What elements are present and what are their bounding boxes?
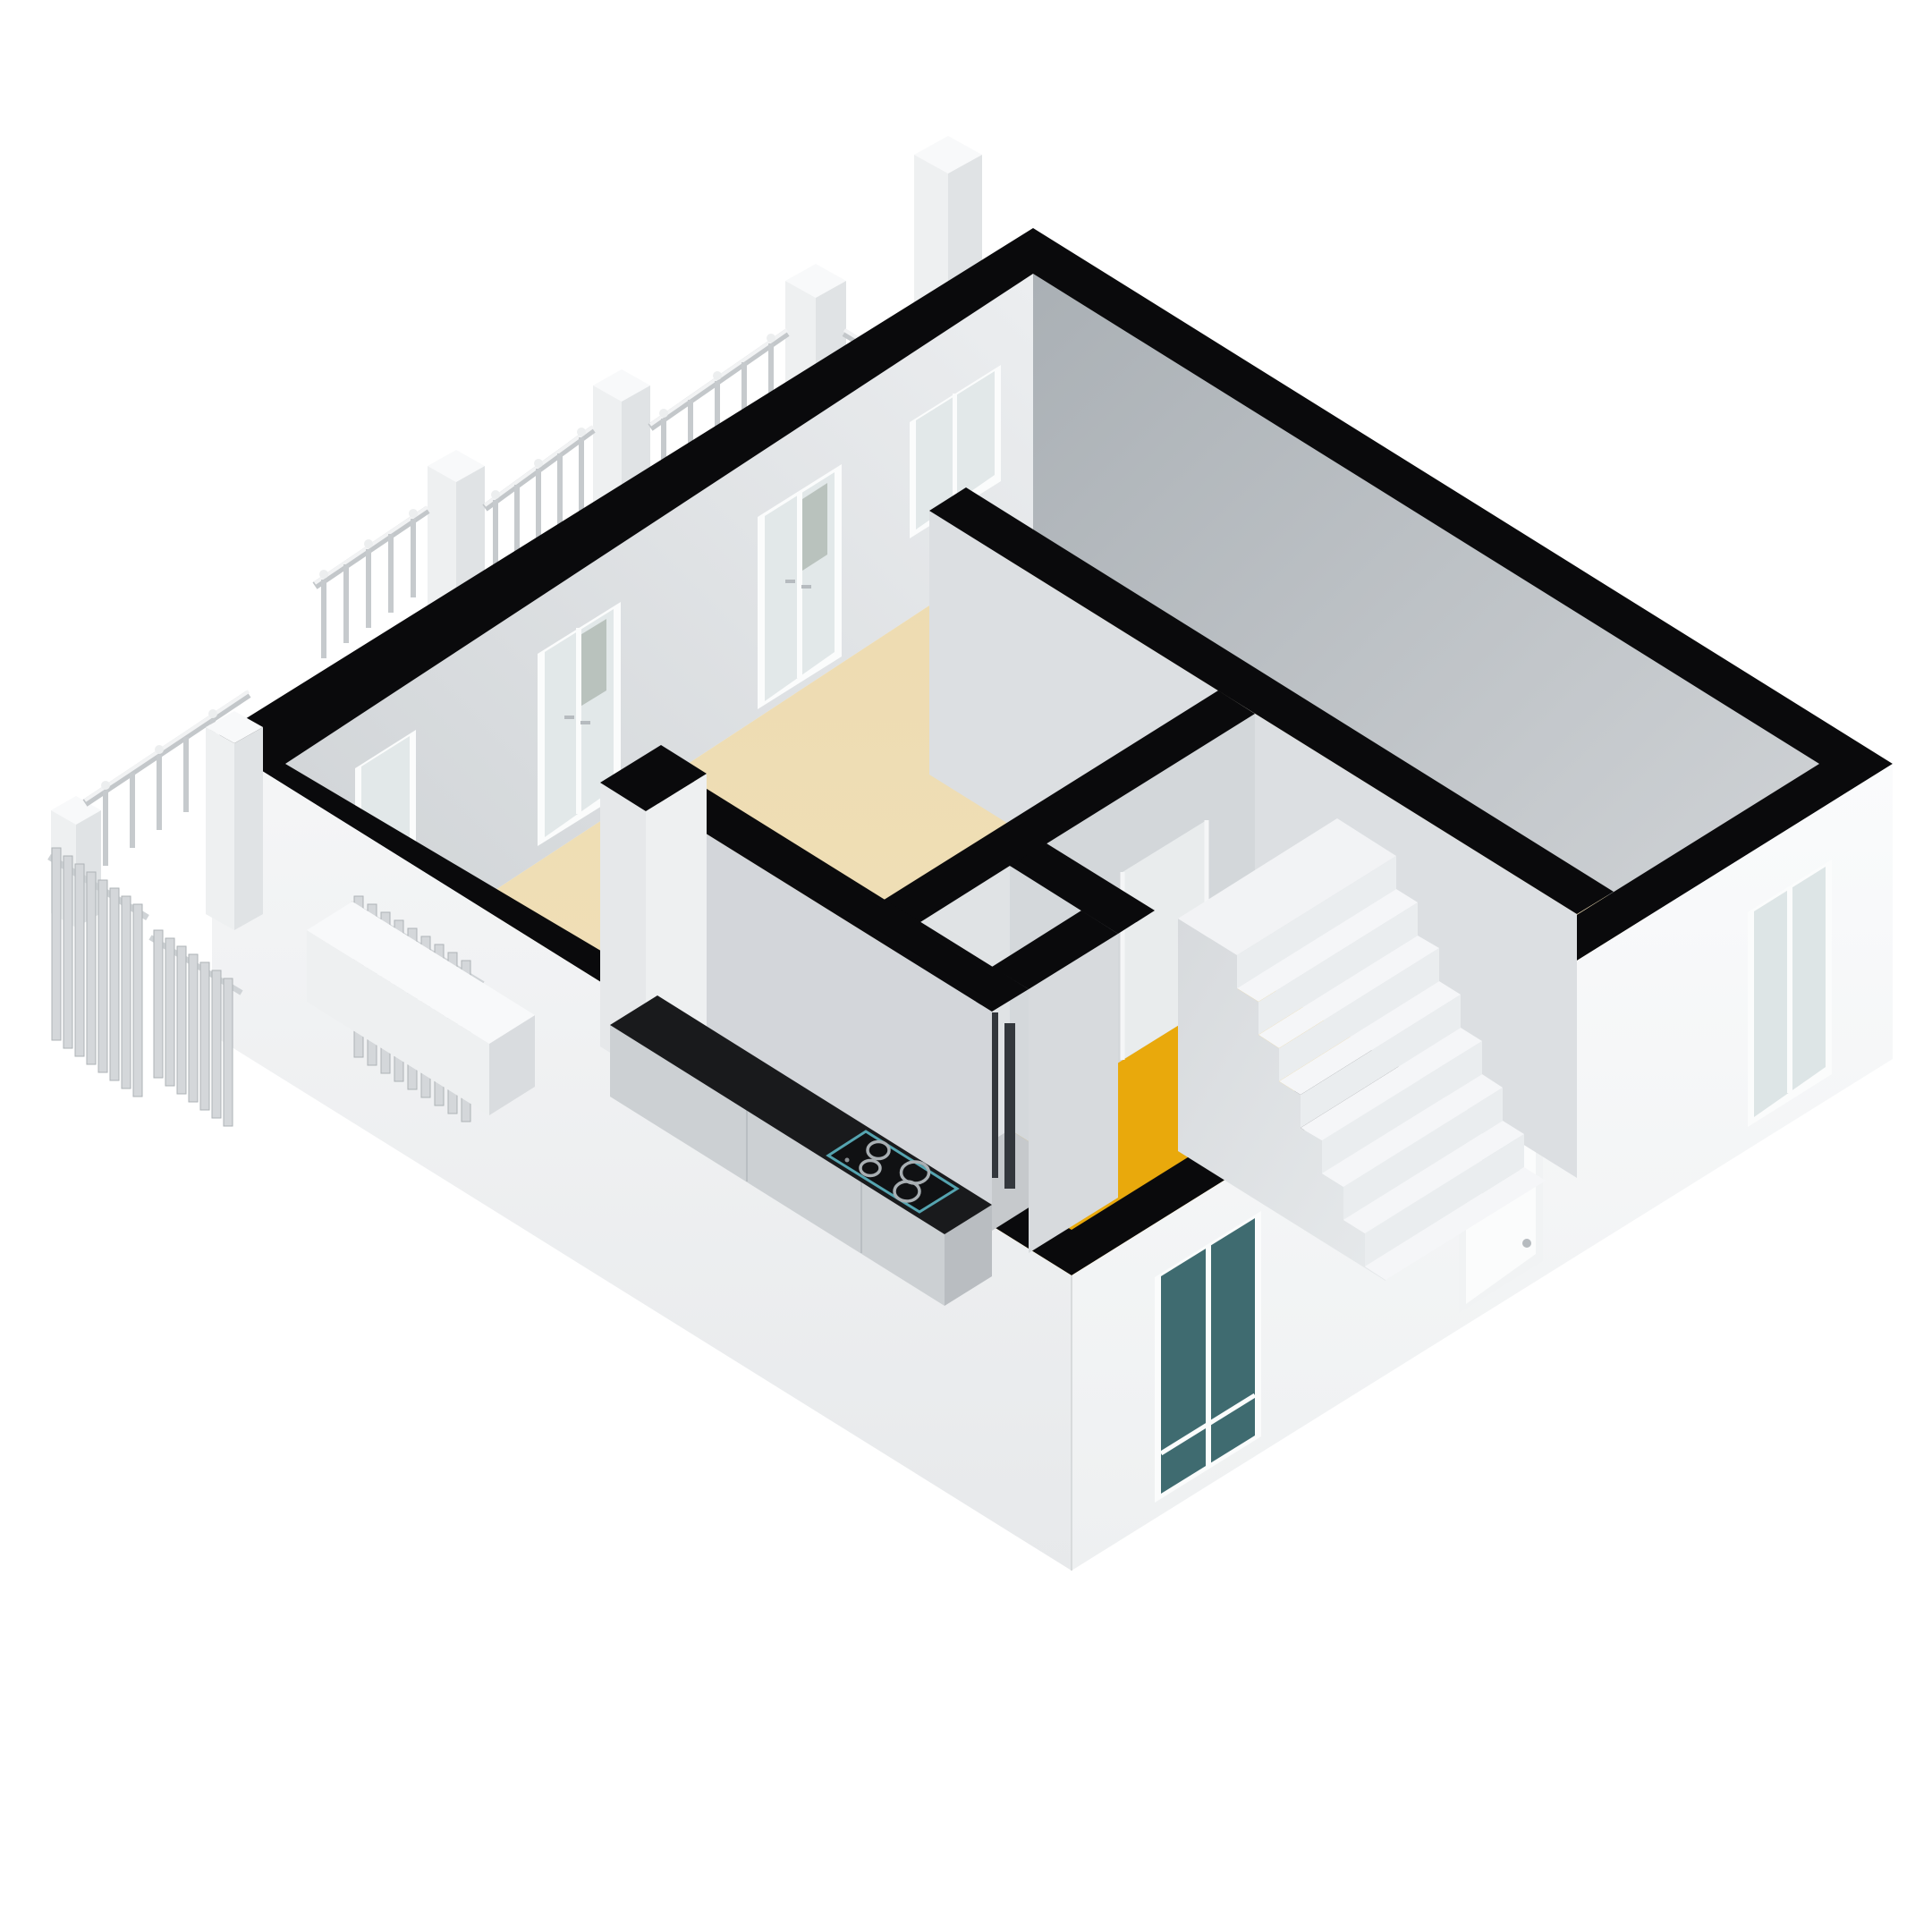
cooktop-control bbox=[845, 1158, 850, 1163]
closet-right-wall-face bbox=[1029, 934, 1118, 1253]
pipe-dark bbox=[1004, 1023, 1015, 1189]
radiator-panel bbox=[49, 848, 148, 1097]
door-handle bbox=[1522, 1239, 1531, 1248]
corner-balcony-pillar bbox=[206, 711, 263, 930]
door-handle bbox=[564, 716, 574, 719]
floorplan-3d-render bbox=[0, 0, 1932, 1931]
door-handle bbox=[801, 585, 811, 589]
door-handle bbox=[785, 580, 795, 583]
floorplan-svg bbox=[0, 0, 1932, 1931]
door-handle bbox=[580, 721, 590, 724]
